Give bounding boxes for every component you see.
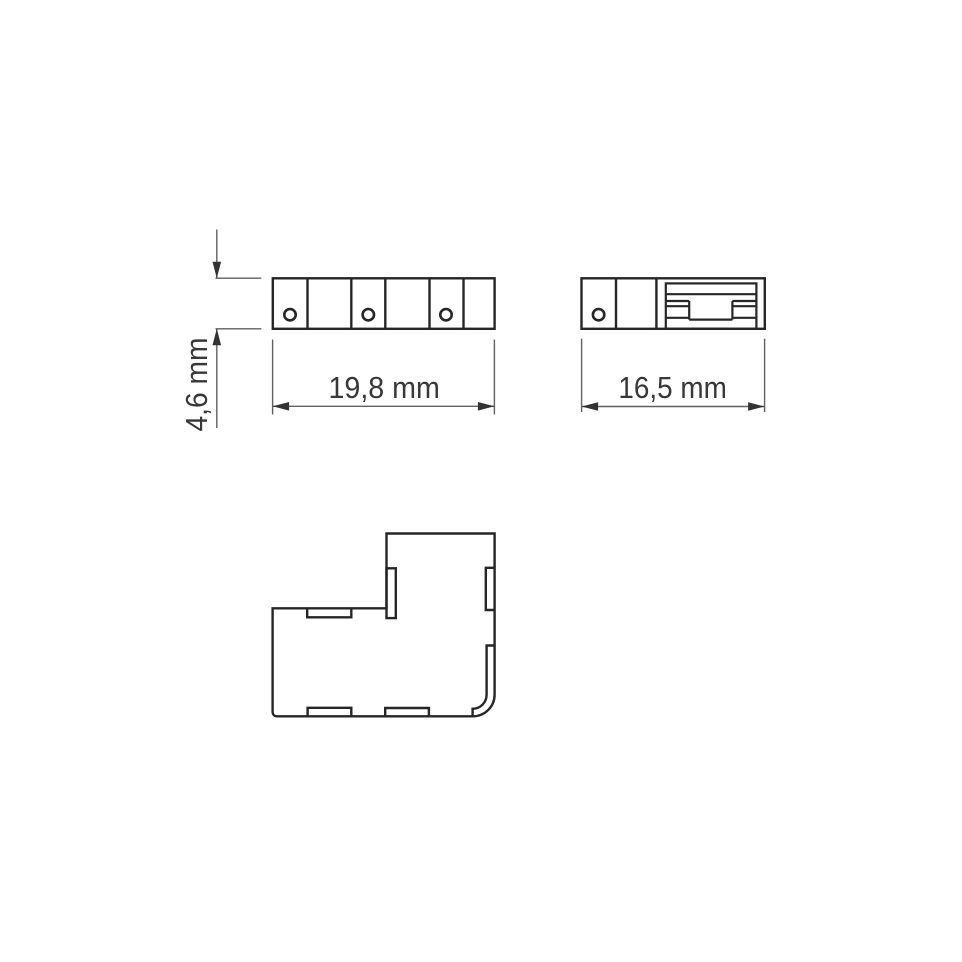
svg-text:4,6 mm: 4,6 mm bbox=[179, 338, 214, 432]
svg-text:16,5 mm: 16,5 mm bbox=[618, 370, 727, 405]
svg-text:19,8 mm: 19,8 mm bbox=[328, 370, 440, 405]
